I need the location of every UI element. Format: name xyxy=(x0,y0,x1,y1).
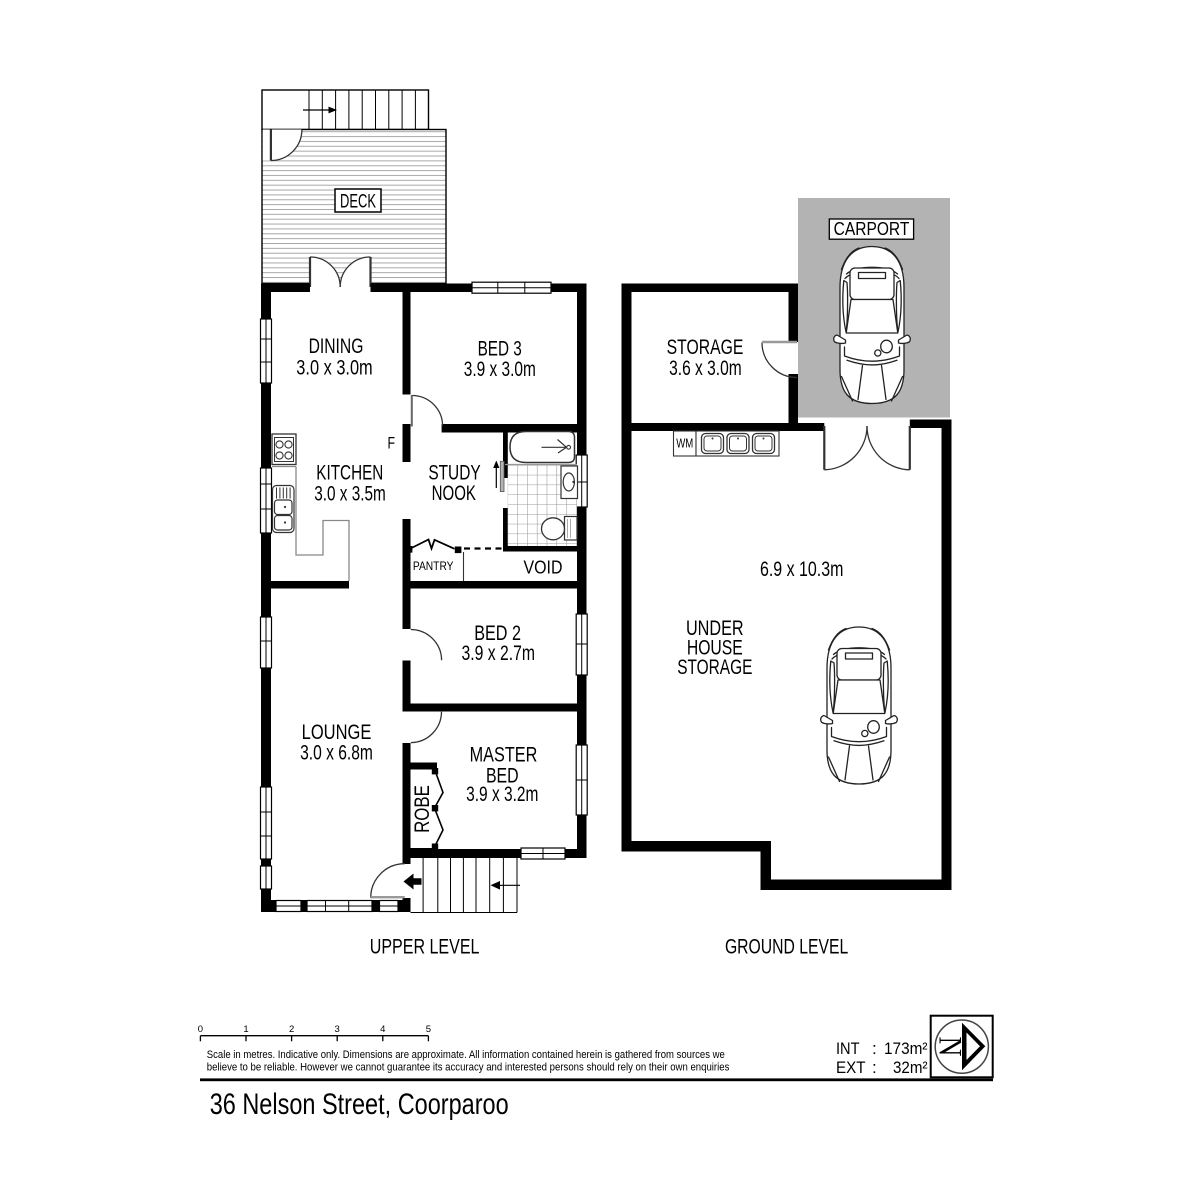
svg-text:173m²: 173m² xyxy=(884,1039,928,1058)
svg-text:3.9 x 2.7m: 3.9 x 2.7m xyxy=(462,642,536,665)
svg-text:5: 5 xyxy=(426,1024,431,1035)
svg-text:3.0 x 3.5m: 3.0 x 3.5m xyxy=(314,482,386,505)
svg-text:STORAGE: STORAGE xyxy=(677,656,752,679)
svg-text:CARPORT: CARPORT xyxy=(834,218,910,239)
svg-text:VOID: VOID xyxy=(524,557,563,578)
svg-text:3.9 x 3.2m: 3.9 x 3.2m xyxy=(466,783,538,806)
svg-text:LOUNGE: LOUNGE xyxy=(302,721,372,744)
svg-text:4: 4 xyxy=(380,1024,385,1035)
svg-text:3: 3 xyxy=(335,1024,340,1035)
svg-text:0: 0 xyxy=(198,1024,203,1035)
svg-text:3.9 x 3.0m: 3.9 x 3.0m xyxy=(464,358,536,381)
svg-text:DECK: DECK xyxy=(340,192,376,213)
svg-text:Scale in metres. Indicative on: Scale in metres. Indicative only. Dimens… xyxy=(207,1049,725,1061)
svg-text:6.9 x 10.3m: 6.9 x 10.3m xyxy=(760,558,843,581)
svg-text:3.0 x 3.0m: 3.0 x 3.0m xyxy=(296,357,372,380)
svg-text:MASTER: MASTER xyxy=(470,744,538,767)
svg-text:1: 1 xyxy=(243,1024,248,1035)
svg-text:PANTRY: PANTRY xyxy=(413,559,454,573)
svg-text:believe to be reliable. Howeve: believe to be reliable. However we canno… xyxy=(207,1062,730,1074)
svg-text:WM: WM xyxy=(676,437,693,451)
svg-text:UPPER LEVEL: UPPER LEVEL xyxy=(370,936,480,959)
svg-text:2: 2 xyxy=(289,1024,294,1035)
svg-text:3.6 x 3.0m: 3.6 x 3.0m xyxy=(669,357,742,380)
svg-text:INT: INT xyxy=(836,1039,860,1058)
svg-text:F: F xyxy=(388,433,396,452)
svg-text:KITCHEN: KITCHEN xyxy=(316,462,383,485)
svg-text:NOOK: NOOK xyxy=(432,482,476,505)
svg-text:ROBE: ROBE xyxy=(411,785,434,833)
svg-text::: : xyxy=(872,1058,877,1077)
svg-text:STORAGE: STORAGE xyxy=(667,336,744,359)
svg-text:32m²: 32m² xyxy=(893,1058,928,1077)
svg-text:EXT: EXT xyxy=(836,1058,866,1077)
svg-text:DINING: DINING xyxy=(309,335,364,358)
svg-text:3.0 x 6.8m: 3.0 x 6.8m xyxy=(300,742,373,765)
svg-text:36 Nelson Street, Coorparoo: 36 Nelson Street, Coorparoo xyxy=(210,1088,509,1121)
svg-text::: : xyxy=(872,1039,877,1058)
svg-text:GROUND LEVEL: GROUND LEVEL xyxy=(725,936,848,959)
